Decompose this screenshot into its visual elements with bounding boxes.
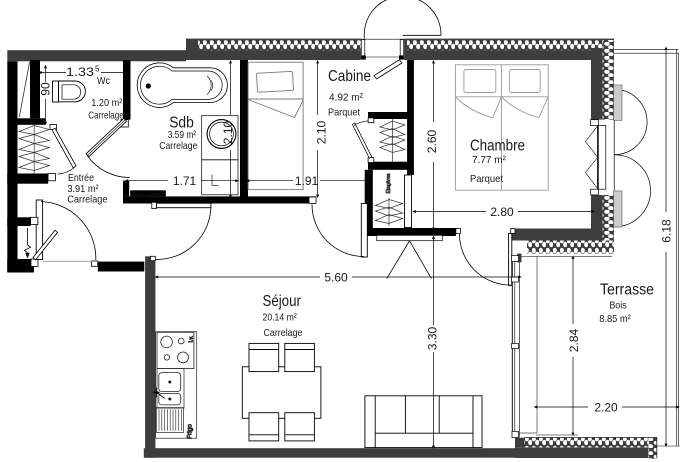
svg-text:Carrelage: Carrelage <box>264 327 303 339</box>
svg-text:5.60: 5.60 <box>324 271 348 285</box>
svg-text:4.92 m²: 4.92 m² <box>329 92 363 104</box>
svg-text:2.60: 2.60 <box>425 129 439 153</box>
svg-text:Bois: Bois <box>609 301 626 312</box>
svg-text:l.v.: l.v. <box>189 335 195 342</box>
svg-text:Carrelage: Carrelage <box>88 109 124 121</box>
svg-text:8.85 m²: 8.85 m² <box>599 313 631 325</box>
svg-text:3.30: 3.30 <box>426 326 440 350</box>
svg-text:1.91: 1.91 <box>295 174 319 188</box>
svg-text:Carrelage: Carrelage <box>67 193 107 205</box>
svg-text:2.20: 2.20 <box>594 401 618 415</box>
svg-text:Cabine: Cabine <box>328 68 371 85</box>
svg-text:1.71: 1.71 <box>173 174 197 188</box>
svg-text:Sèche Serviette: Sèche Serviette <box>133 191 164 196</box>
svg-text:2.84: 2.84 <box>567 328 581 352</box>
svg-text:90: 90 <box>38 82 52 96</box>
svg-text:6.18: 6.18 <box>660 219 674 243</box>
svg-text:Séjour: Séjour <box>262 293 301 310</box>
svg-text:Frigo: Frigo <box>186 424 193 439</box>
svg-text:Terrasse: Terrasse <box>600 282 654 299</box>
svg-text:Etagères: Etagères <box>386 173 392 194</box>
svg-text:20.14 m²: 20.14 m² <box>263 312 298 324</box>
svg-text:1.33: 1.33 <box>66 65 94 79</box>
svg-text:7.77 m²: 7.77 m² <box>472 154 506 166</box>
svg-text:1.20 m²: 1.20 m² <box>91 97 122 109</box>
svg-text:Carrelage: Carrelage <box>159 140 197 152</box>
svg-text:5: 5 <box>95 65 100 74</box>
svg-text:Parquet: Parquet <box>470 173 503 185</box>
svg-text:Wc: Wc <box>97 75 110 87</box>
svg-text:2.10: 2.10 <box>221 120 235 144</box>
svg-text:2.80: 2.80 <box>490 205 514 219</box>
svg-text:2.10: 2.10 <box>315 120 329 144</box>
svg-text:Chambre: Chambre <box>470 138 525 155</box>
svg-text:Parquet: Parquet <box>328 106 360 118</box>
